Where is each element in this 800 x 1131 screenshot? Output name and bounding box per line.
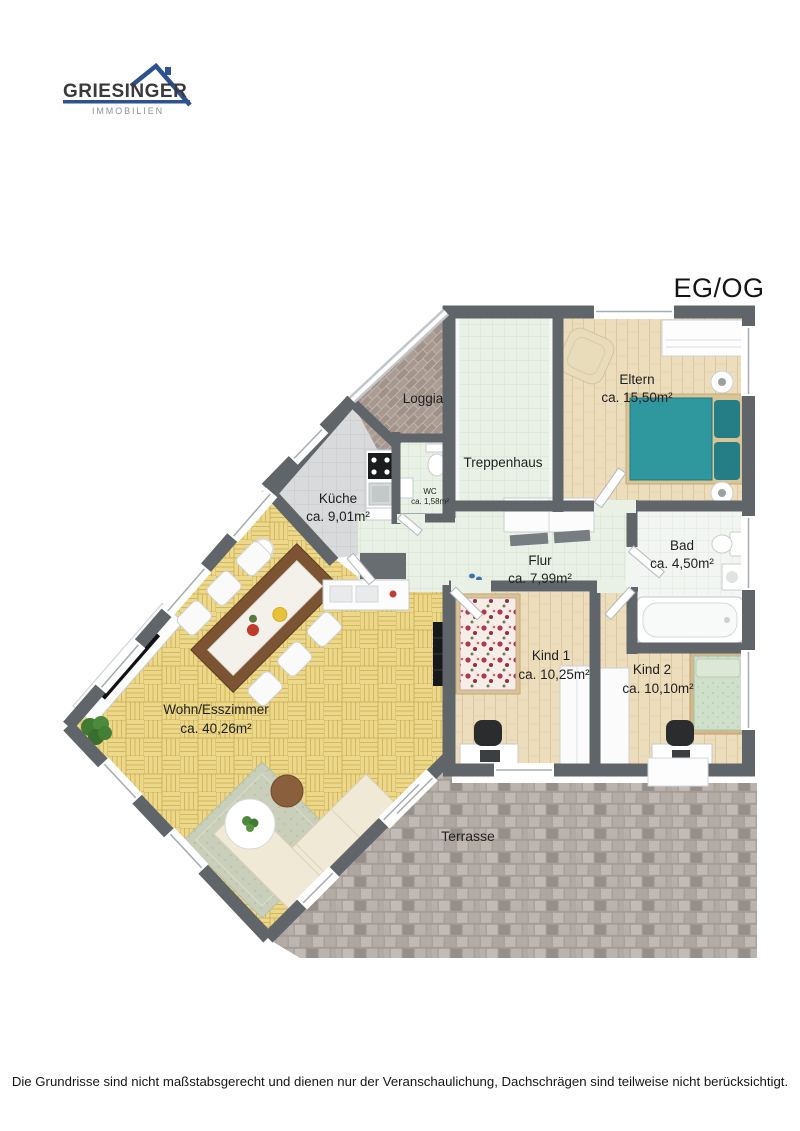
bed-kind1 — [460, 598, 516, 690]
logo-brand-text: GRIESINGER — [63, 81, 187, 102]
company-logo: GRIESINGER IMMOBILIEN — [63, 66, 190, 116]
room-eltern-label: Eltern — [619, 372, 654, 387]
room-bad-label: Bad — [670, 538, 694, 553]
cooktop-icon — [368, 453, 393, 479]
wardrobe-eltern — [662, 320, 746, 356]
room-eltern-area: ca. 15,50m² — [601, 390, 673, 405]
desk-chair-kind1 — [474, 720, 502, 746]
room-kind1-area: ca. 10,25m² — [518, 667, 590, 682]
logo-tagline-text: IMMOBILIEN — [92, 106, 164, 116]
room-wohnen-area: ca. 40,26m² — [180, 721, 252, 736]
room-kueche-area: ca. 9,01m² — [306, 509, 370, 524]
desk-chair-kind2 — [666, 720, 694, 746]
double-bed — [626, 394, 748, 484]
room-treppenhaus-floor — [452, 310, 558, 510]
room-loggia-label: Loggia — [403, 391, 444, 406]
room-wc-label: WC — [423, 487, 437, 496]
floor-plan-image: GRIESINGER IMMOBILIEN EG/OG — [0, 0, 800, 1131]
room-flur-label: Flur — [528, 553, 552, 568]
room-kind2-area: ca. 10,10m² — [622, 681, 694, 696]
page-title: EG/OG — [673, 273, 764, 303]
side-table-round — [271, 775, 303, 807]
room-wc-area: ca. 1,58m² — [411, 497, 449, 506]
wc-sink — [400, 478, 413, 498]
room-kind2-label: Kind 2 — [633, 662, 671, 677]
floor-plan-page: GRIESINGER IMMOBILIEN EG/OG — [0, 0, 800, 1131]
room-terrasse-label: Terrasse — [441, 828, 495, 844]
room-kind1-label: Kind 1 — [532, 648, 570, 663]
bad-toilet-icon — [712, 535, 732, 553]
room-wohnen-label: Wohn/Esszimmer — [163, 702, 269, 717]
room-flur-area: ca. 7,99m² — [508, 571, 572, 586]
room-bad-area: ca. 4,50m² — [650, 556, 714, 571]
terrace-door-step — [648, 758, 708, 786]
room-kueche-label: Küche — [319, 491, 357, 506]
disclaimer-text: Die Grundrisse sind nicht maßstabsgerech… — [12, 1074, 788, 1089]
room-treppenhaus-label: Treppenhaus — [463, 455, 542, 470]
